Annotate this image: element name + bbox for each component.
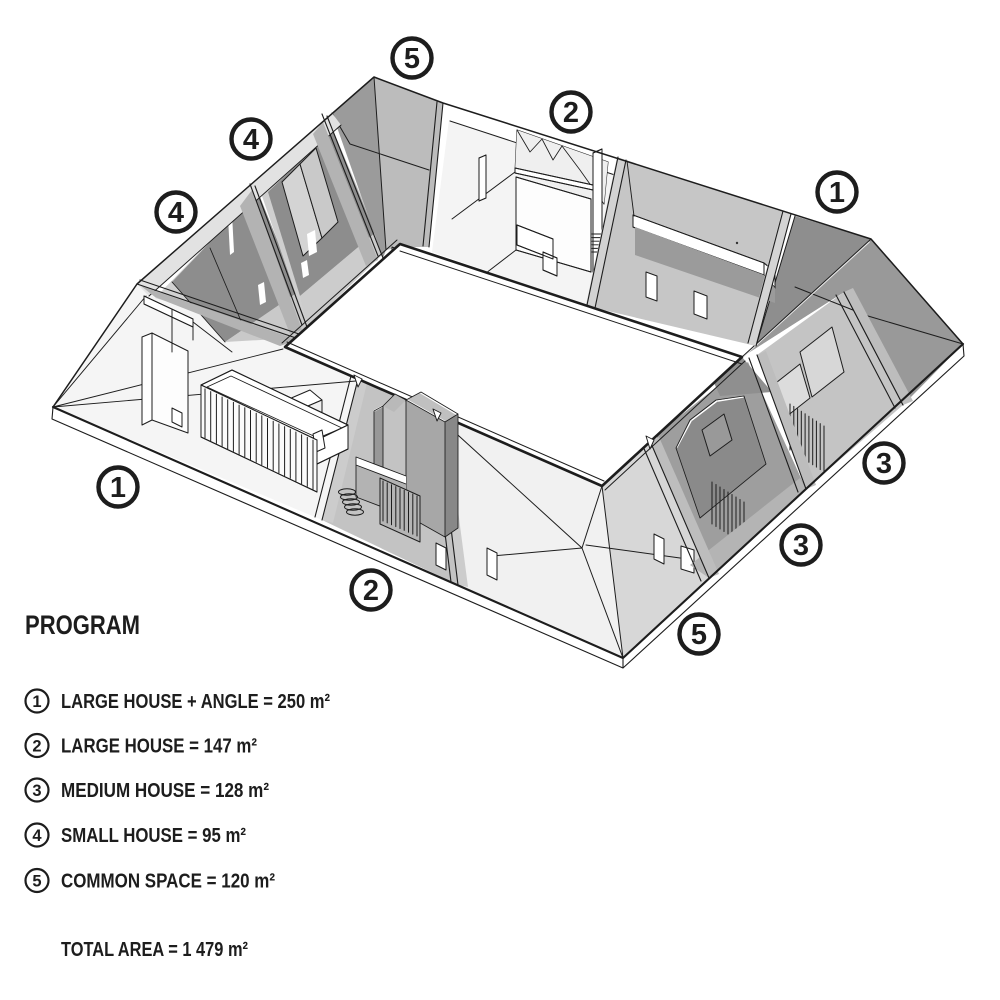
svg-text:5: 5 — [32, 873, 41, 891]
svg-text:1: 1 — [829, 177, 845, 209]
svg-text:4: 4 — [168, 197, 184, 229]
svg-text:3: 3 — [793, 530, 809, 562]
svg-text:2: 2 — [363, 575, 379, 607]
svg-text:LARGE HOUSE + ANGLE = 250 m²: LARGE HOUSE + ANGLE = 250 m² — [61, 691, 330, 713]
svg-text:COMMON SPACE = 120 m²: COMMON SPACE = 120 m² — [61, 871, 275, 893]
svg-text:1: 1 — [32, 693, 41, 711]
svg-text:5: 5 — [404, 43, 420, 75]
svg-text:2: 2 — [563, 97, 579, 129]
svg-text:5: 5 — [691, 619, 707, 651]
svg-text:PROGRAM: PROGRAM — [25, 610, 140, 640]
svg-text:3: 3 — [876, 448, 892, 480]
svg-text:3: 3 — [32, 782, 41, 800]
svg-text:4: 4 — [32, 827, 42, 845]
svg-text:TOTAL AREA = 1 479 m²: TOTAL AREA = 1 479 m² — [61, 939, 248, 961]
svg-text:1: 1 — [110, 472, 126, 504]
svg-text:2: 2 — [32, 738, 41, 756]
svg-text:SMALL HOUSE = 95 m²: SMALL HOUSE = 95 m² — [61, 825, 246, 847]
svg-text:MEDIUM HOUSE = 128 m²: MEDIUM HOUSE = 128 m² — [61, 780, 269, 802]
svg-text:LARGE HOUSE = 147 m²: LARGE HOUSE = 147 m² — [61, 736, 257, 758]
svg-text:4: 4 — [243, 124, 259, 156]
